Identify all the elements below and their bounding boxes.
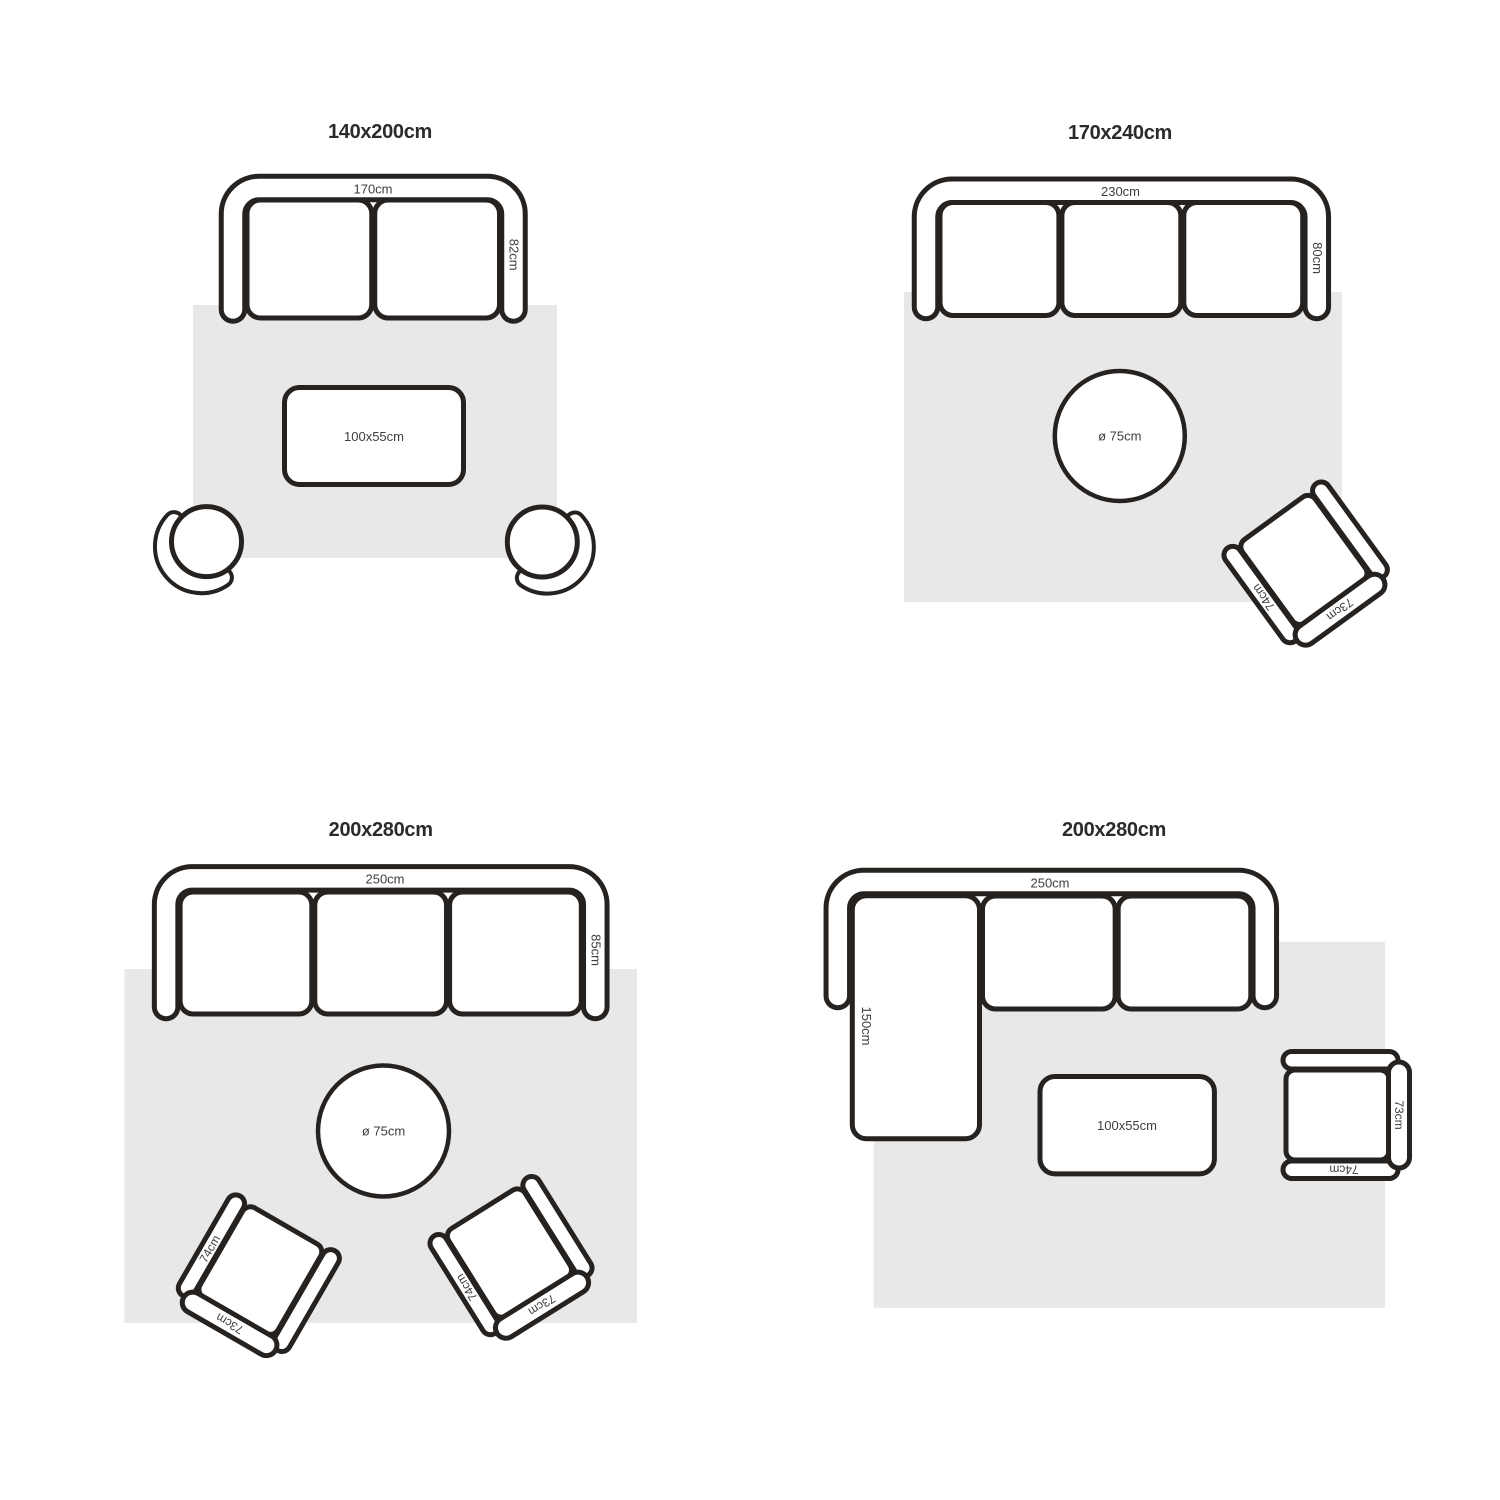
svg-text:ø 75cm: ø 75cm <box>1098 429 1141 444</box>
svg-text:230cm: 230cm <box>1101 184 1140 199</box>
svg-text:250cm: 250cm <box>365 872 404 887</box>
svg-text:140x200cm: 140x200cm <box>328 121 432 143</box>
svg-text:100x55cm: 100x55cm <box>1097 1118 1157 1133</box>
svg-text:100x55cm: 100x55cm <box>344 429 404 444</box>
svg-text:82cm: 82cm <box>507 239 522 271</box>
svg-text:170cm: 170cm <box>353 182 392 197</box>
svg-text:ø 75cm: ø 75cm <box>362 1124 405 1139</box>
svg-text:200x280cm: 200x280cm <box>1062 819 1166 841</box>
svg-text:80cm: 80cm <box>1310 242 1325 274</box>
svg-text:250cm: 250cm <box>1030 876 1069 891</box>
svg-text:200x280cm: 200x280cm <box>329 819 433 841</box>
svg-text:170x240cm: 170x240cm <box>1068 122 1172 144</box>
svg-text:150cm: 150cm <box>859 1006 874 1045</box>
svg-text:85cm: 85cm <box>588 934 603 966</box>
